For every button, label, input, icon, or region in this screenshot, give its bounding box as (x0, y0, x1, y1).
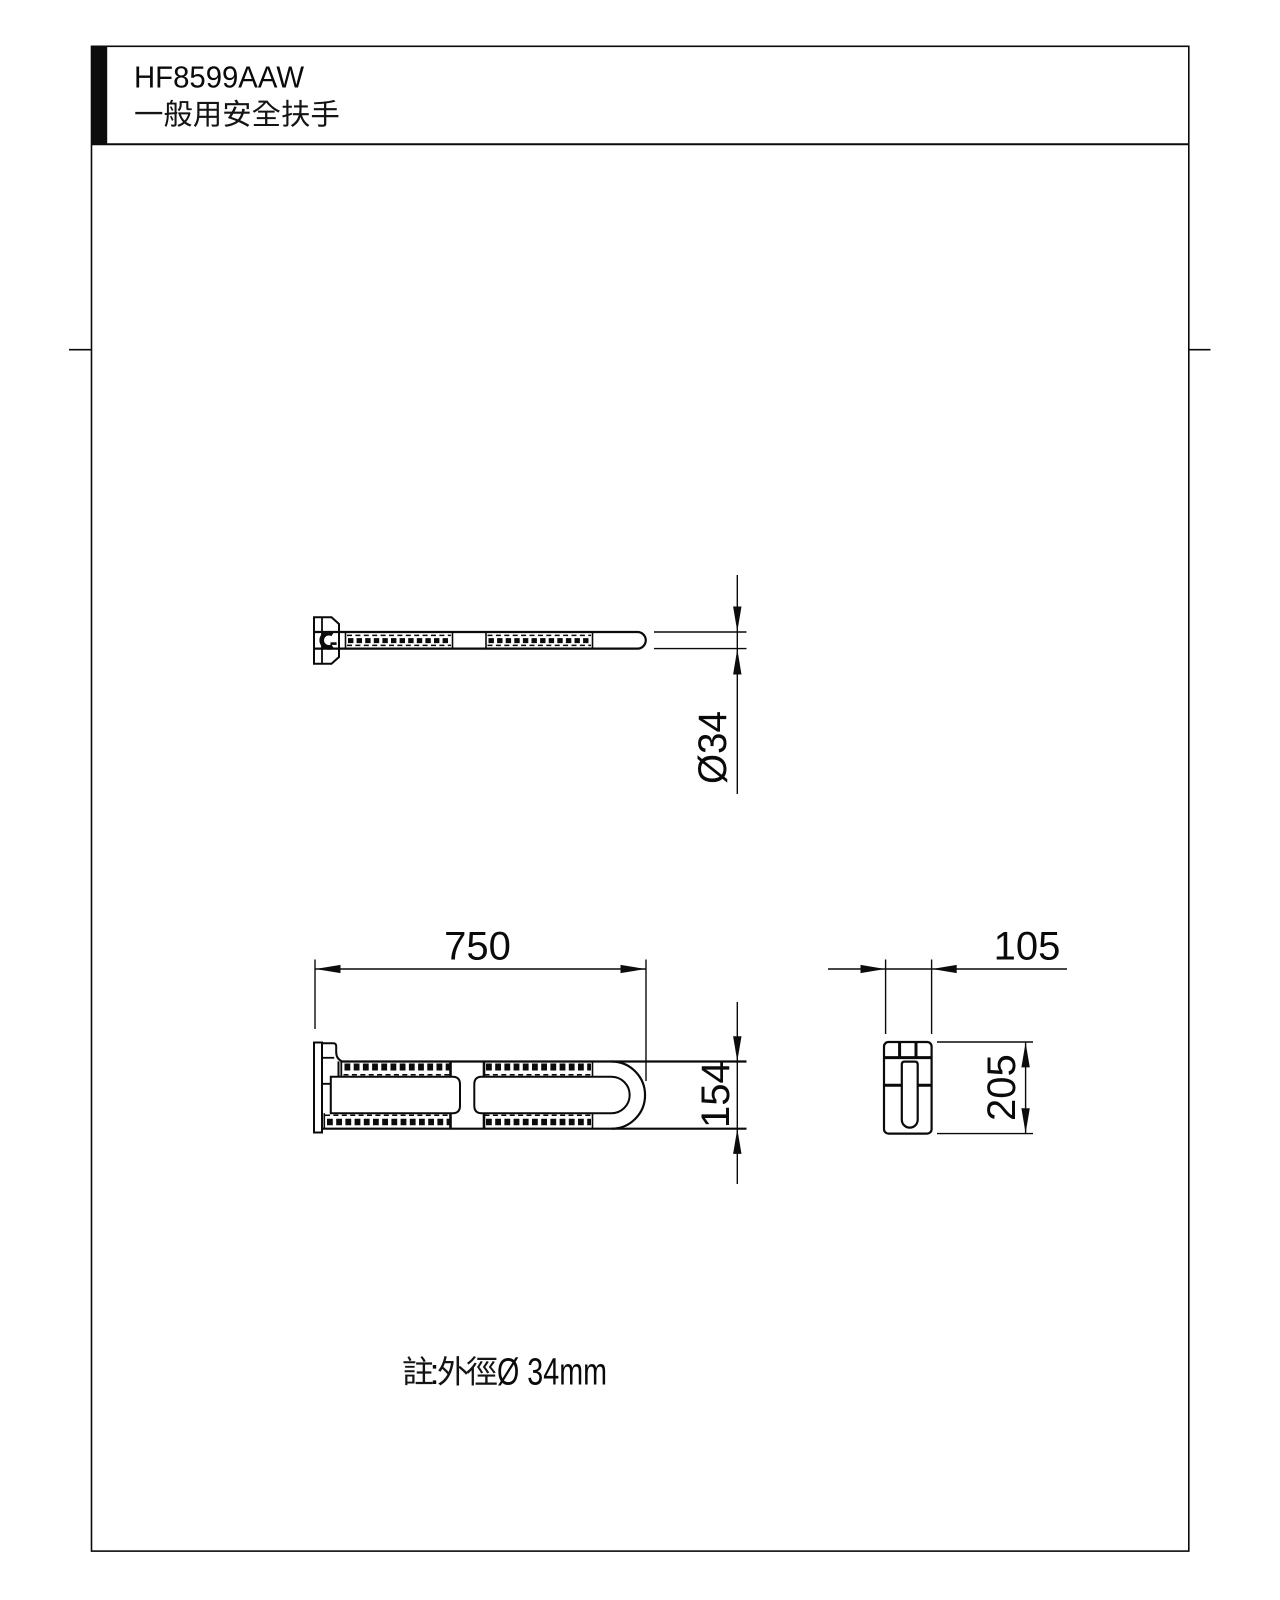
svg-text:205: 205 (980, 1054, 1024, 1121)
svg-text:750: 750 (444, 925, 511, 969)
svg-text::: : (430, 1351, 440, 1392)
svg-text:HF8599AAW: HF8599AAW (134, 60, 305, 95)
svg-text:Ø 34mm: Ø 34mm (497, 1352, 607, 1394)
svg-text:Ø34: Ø34 (691, 711, 735, 784)
svg-text:105: 105 (994, 925, 1061, 969)
svg-text:154: 154 (694, 1061, 738, 1128)
